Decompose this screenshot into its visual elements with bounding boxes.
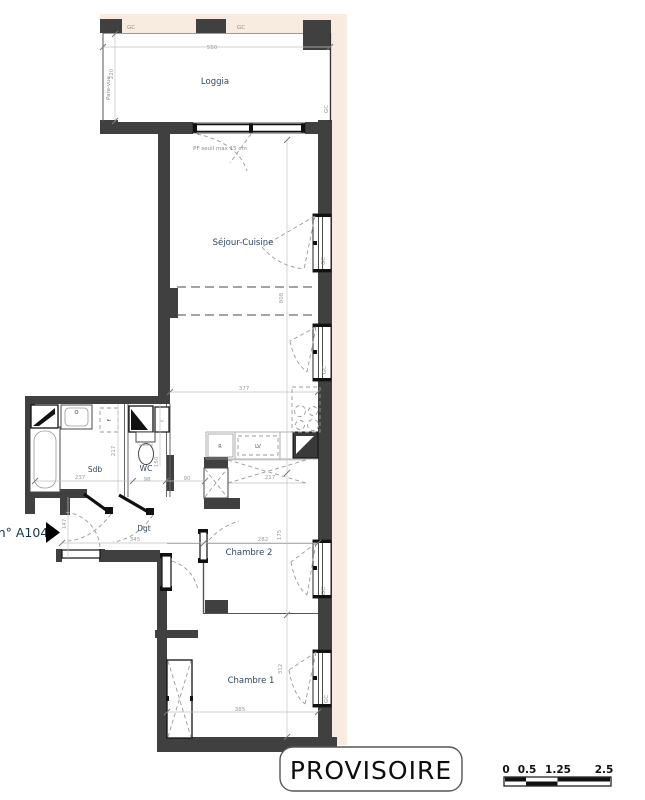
sdb-door <box>68 494 113 541</box>
gc-label-loggia-side: GC <box>324 105 330 113</box>
dimension-labels: 550 220 377 808 237 217 98 150 90 217 14… <box>62 45 285 713</box>
dishwasher-label: LV <box>255 444 261 450</box>
room-labels: Loggia Séjour-Cuisine Sdb WC Dgt Chambre… <box>88 77 275 686</box>
entrance-marker: n° A104 <box>0 522 60 543</box>
room-label-sejour: Séjour-Cuisine <box>213 237 274 248</box>
unit-number-label: n° A104 <box>0 525 48 540</box>
gc-label-window4: GC <box>324 695 330 703</box>
scale-tick-05: 0.5 <box>518 764 537 776</box>
dim-wc-width: 98 <box>144 477 151 483</box>
room-label-wc: WC <box>140 464 153 473</box>
room-label-loggia: Loggia <box>201 77 229 87</box>
dim-chambre1-depth: 312 <box>278 664 284 675</box>
room-label-dgt: Dgt <box>137 524 151 533</box>
shaft-label: F <box>107 418 113 421</box>
chambre1-door <box>160 553 198 591</box>
stamp-text: PROVISOIRE <box>290 756 452 785</box>
dim-chambre2-width: 282 <box>258 537 269 543</box>
gc-label-window3: GC <box>321 587 327 595</box>
kitchen-counter: R LV <box>206 432 318 459</box>
pf-seuil-note: PF seuil max 15 cm <box>193 146 247 152</box>
washbasin <box>61 405 92 429</box>
scale-bar: 0 0.5 1.25 2.5 <box>502 764 613 786</box>
dim-sdb-width: 237 <box>75 475 86 481</box>
scale-tick-0: 0 <box>502 764 509 776</box>
wardrobe <box>166 660 193 738</box>
dim-dgt-depth: 147 <box>62 518 68 529</box>
dim-chambre2-depth: 175 <box>277 529 283 540</box>
room-label-chambre2: Chambre 2 <box>226 548 273 558</box>
dim-kitchen-worktop: 217 <box>265 475 276 481</box>
fridge-label: R <box>218 444 222 450</box>
entrance-arrow-icon <box>46 522 60 543</box>
scale-tick-25: 2.5 <box>595 764 614 776</box>
dim-sdb-depth: 217 <box>111 445 117 456</box>
gc-label-window1: GC <box>321 257 327 265</box>
dim-wc-passage: 90 <box>184 476 191 482</box>
toilet <box>136 432 155 465</box>
floor-plan-canvas: F ~ R LV <box>0 0 645 800</box>
dim-sejour-length: 808 <box>279 292 285 303</box>
dim-dgt-width: 345 <box>130 537 141 543</box>
gc-label-top-1: GC <box>127 25 135 31</box>
floor-plan-drawing: F ~ R LV <box>0 0 645 800</box>
wc-door <box>113 495 154 542</box>
water-heater: ~ <box>155 407 169 432</box>
wc-vent-window <box>129 406 153 432</box>
gc-label-window2: GC <box>322 366 328 374</box>
water-heater-symbol: ~ <box>160 419 164 425</box>
gc-label-top-2: GC <box>237 25 245 31</box>
pare-vue-label: Pare-vue <box>106 75 112 100</box>
sdb-vent-window <box>31 405 58 428</box>
bathtub <box>30 427 60 492</box>
scale-tick-125: 1.25 <box>545 764 571 776</box>
room-label-sdb: Sdb <box>88 465 103 474</box>
sejour-dashed-lines <box>177 287 317 315</box>
provisional-stamp: PROVISOIRE <box>280 747 462 791</box>
dim-loggia-width: 550 <box>207 45 218 51</box>
room-label-chambre1: Chambre 1 <box>228 676 275 686</box>
dim-sejour-width: 377 <box>239 386 250 392</box>
duct-shaft: F <box>100 408 118 432</box>
dim-chambre1-width: 385 <box>235 707 246 713</box>
hall-closet <box>204 468 228 498</box>
dim-wc-depth: 150 <box>154 456 160 467</box>
